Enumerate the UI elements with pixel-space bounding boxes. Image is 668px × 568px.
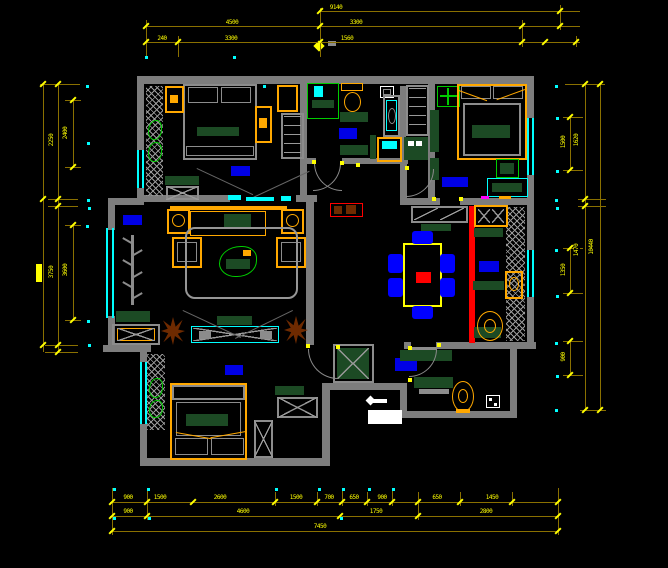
dimension-text[interactable]: 700 [323, 495, 334, 501]
table-runner[interactable] [416, 272, 431, 283]
door-arc[interactable] [409, 349, 437, 377]
cabinet-door[interactable] [478, 209, 490, 223]
dimension-text[interactable]: 3300 [349, 20, 363, 26]
chair-seat[interactable] [500, 163, 514, 174]
hinge-dot [459, 197, 463, 201]
snap-dot [87, 320, 90, 323]
dining-chair[interactable] [412, 306, 433, 319]
bed-foot[interactable] [186, 146, 254, 156]
snap-dot [113, 517, 116, 520]
pillow[interactable] [472, 125, 510, 138]
dimension-connector[interactable] [40, 84, 80, 85]
toilet-tank[interactable] [341, 83, 363, 91]
vanity-sink[interactable] [382, 141, 397, 149]
dimension-text[interactable]: 10440 [589, 239, 595, 255]
wall[interactable] [460, 198, 534, 205]
wardrobe-front[interactable] [277, 397, 318, 418]
wall[interactable] [527, 205, 534, 250]
cabinet[interactable] [370, 135, 376, 159]
wall[interactable] [527, 84, 534, 118]
hinge-dot [432, 197, 436, 201]
snap-dot [556, 295, 559, 298]
snap-dot [556, 375, 559, 378]
snap-dot [145, 56, 148, 59]
bench-seat[interactable] [116, 311, 150, 322]
wardrobe-front[interactable] [254, 420, 273, 458]
glass-door[interactable] [281, 196, 291, 201]
shelf[interactable] [275, 386, 304, 395]
dimension-text[interactable]: 1450 [485, 495, 499, 501]
snap-dot [233, 56, 236, 59]
bench-front[interactable] [117, 328, 155, 341]
dimension-text[interactable]: 7450 [313, 524, 327, 530]
hinge-dot [437, 343, 441, 347]
dining-chair[interactable] [412, 231, 433, 244]
snap-dot [88, 344, 91, 347]
bath-counter[interactable] [340, 145, 368, 155]
wall[interactable] [527, 297, 534, 345]
dimension-text[interactable]: 1470 [574, 244, 580, 256]
decor[interactable] [334, 206, 342, 214]
shower-head[interactable] [314, 86, 323, 97]
dimension-line[interactable] [43, 84, 44, 352]
dimension-text[interactable]: 4600 [236, 509, 250, 515]
wall[interactable] [108, 198, 144, 205]
dimension-text[interactable]: 900 [122, 495, 133, 501]
wall[interactable] [140, 424, 147, 462]
dimension-line[interactable] [145, 42, 580, 43]
dimension-text[interactable]: 900 [561, 352, 567, 361]
dimension-line[interactable] [145, 26, 580, 27]
window[interactable] [527, 118, 534, 175]
lamp[interactable] [259, 118, 267, 128]
snap-dot [555, 199, 558, 202]
wall[interactable] [322, 383, 330, 466]
sideboard-door[interactable] [414, 208, 438, 220]
snap-dot [263, 85, 266, 88]
wardrobe-shelves[interactable] [284, 116, 301, 156]
dimension-text[interactable]: 1500 [153, 495, 167, 501]
snap-dot [555, 85, 558, 88]
wall[interactable] [108, 205, 115, 230]
snap-dot [318, 488, 321, 491]
shower-shelf[interactable] [312, 100, 334, 108]
snap-dot [148, 517, 151, 520]
dimension-text[interactable]: 3750 [49, 266, 55, 278]
pillow[interactable] [188, 87, 218, 103]
dimension-connector[interactable] [48, 206, 78, 207]
mark[interactable] [481, 196, 489, 199]
bath-counter[interactable] [340, 112, 368, 122]
label-box[interactable] [368, 410, 402, 424]
room-label[interactable] [231, 166, 250, 176]
drawer[interactable] [260, 331, 272, 339]
dimension-text[interactable]: 1350 [561, 264, 567, 276]
drawer[interactable] [199, 331, 211, 339]
dining-chair[interactable] [388, 254, 403, 273]
snap-dot [88, 207, 91, 210]
snap-dot [113, 488, 116, 491]
dimension-line[interactable] [110, 531, 558, 532]
pillow[interactable] [221, 87, 251, 103]
snap-dot [342, 488, 345, 491]
door-arc[interactable] [308, 349, 338, 379]
shoe-bench[interactable] [414, 377, 453, 388]
wall[interactable] [436, 342, 517, 349]
glass-door[interactable] [246, 197, 274, 201]
dimension-line[interactable] [600, 84, 601, 410]
cabinet-door[interactable] [492, 209, 504, 223]
wall[interactable] [140, 352, 147, 362]
headboard[interactable] [493, 86, 523, 99]
dimension-text[interactable]: 4500 [225, 20, 239, 26]
dimension-line[interactable] [570, 341, 571, 375]
dot[interactable] [494, 403, 497, 406]
bed-runner[interactable] [197, 127, 239, 136]
counter[interactable] [474, 228, 503, 237]
cabinet[interactable] [277, 85, 298, 112]
decor[interactable] [243, 250, 251, 256]
drawer[interactable] [175, 438, 208, 455]
dining-chair[interactable] [440, 254, 455, 273]
entry-arrow-head[interactable] [366, 396, 376, 406]
dimension-line[interactable] [58, 84, 59, 352]
dimension-line[interactable] [73, 225, 74, 320]
snap-dot [86, 85, 89, 88]
room-label[interactable] [442, 177, 468, 187]
dimension-text[interactable]: 1620 [574, 134, 580, 146]
dining-chair[interactable] [440, 278, 455, 297]
plant-brown[interactable] [161, 317, 185, 345]
table-lamp[interactable] [172, 214, 185, 227]
hinge-dot [356, 163, 360, 167]
window[interactable] [137, 150, 144, 188]
snap-dot [368, 488, 371, 491]
dimension-line[interactable] [570, 248, 571, 293]
dresser-front[interactable] [166, 186, 199, 200]
snap-dot [86, 225, 89, 228]
hinge-dot [340, 161, 344, 165]
dimension-line[interactable] [110, 502, 558, 503]
washer-door[interactable] [388, 108, 396, 124]
door-panel[interactable] [408, 141, 414, 146]
dimension-line[interactable] [73, 100, 74, 167]
decor[interactable] [346, 205, 356, 214]
stool-seat[interactable] [484, 319, 496, 333]
hall-tree[interactable] [131, 235, 134, 305]
wall[interactable] [296, 195, 317, 202]
snap-dot [392, 488, 395, 491]
dresser-top[interactable] [165, 176, 199, 185]
dimension-text[interactable]: 900 [376, 495, 387, 501]
cabinet[interactable] [430, 110, 439, 152]
wall[interactable] [137, 84, 144, 150]
dimension-text[interactable]: 1560 [340, 36, 354, 42]
snap-dot [555, 342, 558, 345]
wall-hatch[interactable] [146, 86, 163, 196]
dimension-connector[interactable] [45, 345, 78, 346]
snap-dot [555, 409, 558, 412]
table-lamp[interactable] [286, 214, 299, 227]
sink-bowl[interactable] [509, 277, 519, 291]
dimension-text[interactable]: 3300 [224, 36, 238, 42]
hinge-dot [408, 346, 412, 350]
vase-base[interactable] [456, 409, 470, 413]
sideboard-door[interactable] [440, 208, 464, 220]
dimension-connector[interactable] [48, 199, 78, 200]
room-label[interactable] [225, 365, 243, 375]
dimension-connector[interactable] [45, 352, 78, 353]
dimension-text[interactable]: 650 [348, 495, 359, 501]
snap-dot [556, 207, 559, 210]
wall[interactable] [103, 345, 151, 352]
dimension-line[interactable] [585, 84, 586, 410]
fan-blade[interactable] [440, 95, 457, 97]
room-label[interactable] [339, 128, 357, 139]
room-label[interactable] [123, 215, 142, 225]
hinge-dot [405, 166, 409, 170]
plant-brown[interactable] [284, 316, 308, 344]
dining-chair[interactable] [388, 278, 403, 297]
snap-dot [87, 199, 90, 202]
snap-dot [555, 249, 558, 252]
hinge-dot [306, 344, 310, 348]
dimension-text[interactable]: 1500 [289, 495, 303, 501]
bay-window[interactable] [106, 228, 114, 318]
snap-dot [87, 142, 90, 145]
wall[interactable] [306, 202, 314, 345]
cabinet-front[interactable] [337, 348, 369, 379]
dimension-line[interactable] [110, 516, 558, 517]
glass-door[interactable] [228, 195, 241, 200]
floorplan-canvas[interactable]: 9140450033002403300156090015002600150070… [0, 0, 668, 568]
dimension-text[interactable]: 1500 [561, 136, 567, 148]
room-label[interactable] [479, 261, 499, 272]
closet-shelves[interactable] [409, 88, 426, 133]
window[interactable] [527, 250, 534, 297]
toilet[interactable] [344, 92, 361, 112]
dimension-line[interactable] [320, 11, 580, 12]
dimension-text[interactable]: 2800 [479, 509, 493, 515]
snap-dot [556, 117, 559, 120]
snap-dot [556, 170, 559, 173]
drawer[interactable] [211, 438, 244, 455]
snap-dot [340, 517, 343, 520]
plant-leaf[interactable] [226, 259, 250, 269]
dimension-text[interactable]: 650 [431, 495, 442, 501]
lamp[interactable] [170, 95, 178, 103]
wall[interactable] [322, 383, 407, 390]
headboard[interactable] [172, 385, 245, 400]
vase-inner[interactable] [458, 389, 468, 403]
counter[interactable] [473, 281, 504, 290]
window[interactable] [140, 362, 147, 424]
door-panel[interactable] [416, 141, 422, 146]
hinge-dot [312, 160, 316, 164]
dimension-text[interactable]: 2250 [49, 134, 55, 146]
dimension-text[interactable]: 1750 [369, 509, 383, 515]
snap-dot [147, 488, 150, 491]
elevation-mark[interactable] [36, 264, 42, 282]
base[interactable] [419, 389, 449, 394]
dot[interactable] [489, 398, 492, 401]
desk-top[interactable] [492, 183, 522, 192]
dimension-text[interactable]: 3600 [63, 264, 69, 276]
hinge-dot [408, 378, 412, 382]
wall[interactable] [510, 345, 517, 418]
dimension-text[interactable]: 900 [122, 509, 133, 515]
dimension-text[interactable]: 2600 [213, 495, 227, 501]
tv[interactable] [217, 316, 252, 325]
pillow[interactable] [186, 414, 228, 426]
dimension-line[interactable] [570, 117, 571, 170]
snap-dot [275, 488, 278, 491]
mark[interactable] [499, 196, 511, 199]
door-mat[interactable] [486, 395, 500, 408]
dimension-text[interactable]: 240 [156, 36, 167, 42]
dimension-text[interactable]: 9140 [329, 5, 343, 11]
dimension-line[interactable] [320, 8, 321, 57]
dimension-text[interactable]: 2400 [63, 127, 69, 139]
sideboard-shelf[interactable] [421, 224, 451, 231]
hinge-dot [336, 345, 340, 349]
